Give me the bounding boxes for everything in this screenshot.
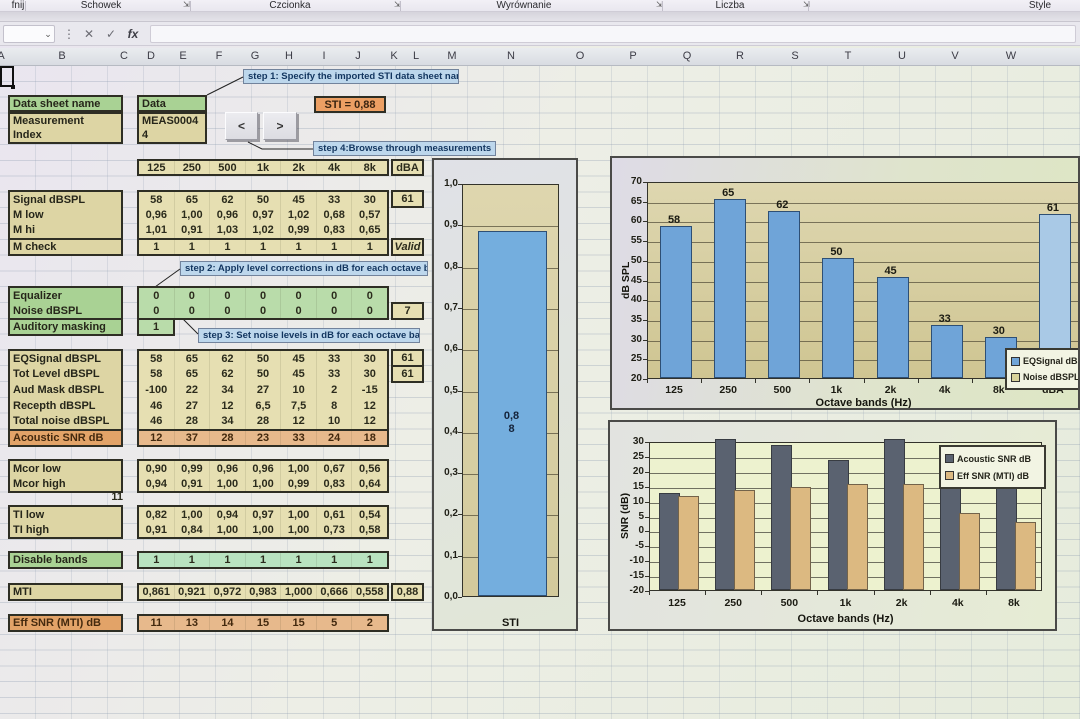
row-value-group[interactable]: 1	[137, 318, 175, 336]
cell-mcorlow-5[interactable]: 0,67	[316, 461, 352, 476]
cell-recepth-5[interactable]: 8	[316, 398, 352, 414]
cell-totlevel-5[interactable]: 33	[316, 367, 352, 383]
cell-noise-4[interactable]: 0	[280, 303, 316, 318]
cell-mti-0[interactable]: 0,861	[139, 585, 174, 599]
cell-snr-4[interactable]: 33	[280, 431, 316, 445]
next-measurement-button[interactable]: >	[263, 112, 297, 140]
column-header-O[interactable]: O	[576, 50, 585, 62]
measurement-label-line: Index	[10, 128, 121, 142]
cell-mcorlow-4[interactable]: 1,00	[280, 461, 316, 476]
cell-mhi-1[interactable]: 0,91	[174, 223, 210, 238]
snr-bar-8k-s1	[1015, 522, 1036, 590]
spl-bar-label-500: 62	[776, 199, 788, 211]
cell-disable-3[interactable]: 1	[245, 553, 281, 567]
cell-recepth-2[interactable]: 12	[209, 398, 245, 414]
column-header-K[interactable]: K	[390, 50, 397, 62]
row-label-group[interactable]: Signal dBSPLM lowM hi	[8, 190, 123, 240]
row-label-group[interactable]: Auditory masking	[8, 318, 123, 336]
y-tick-mark	[458, 349, 462, 350]
cell-tihigh-4[interactable]: 1,00	[280, 522, 316, 537]
row-value-group[interactable]: 586562504533300,961,000,960,971,020,680,…	[137, 190, 389, 240]
legend-swatch	[945, 471, 954, 480]
cell-audmask-0[interactable]: -100	[139, 382, 174, 398]
cell-disable-0[interactable]: 1	[139, 553, 174, 567]
cell-signal-6[interactable]: 30	[351, 192, 387, 207]
extra-cell-totlevel[interactable]: 61	[391, 365, 424, 383]
cell-audmask-1[interactable]: 22	[174, 382, 210, 398]
column-header-N[interactable]: N	[507, 50, 515, 62]
cell-mcheck-5[interactable]: 1	[316, 240, 352, 254]
cell-masking-0[interactable]: 1	[139, 320, 173, 334]
band-header-500[interactable]: 500	[209, 161, 245, 174]
cell-tihigh-3[interactable]: 1,00	[245, 522, 281, 537]
row-values-disable: 1111111	[139, 553, 387, 567]
cancel-icon[interactable]: ✕	[80, 25, 98, 43]
cell-noise-5[interactable]: 0	[316, 303, 352, 318]
column-header-D[interactable]: D	[147, 50, 155, 62]
cell-mcorhigh-1[interactable]: 0,91	[174, 476, 210, 491]
cell-snr-1[interactable]: 37	[174, 431, 210, 445]
row-value-group[interactable]: 0,821,000,940,971,000,610,540,910,841,00…	[137, 505, 389, 539]
cell-tilow-0[interactable]: 0,82	[139, 507, 174, 522]
row-label-disable[interactable]: Disable bands	[10, 553, 121, 567]
y-tick-label: 0,4	[434, 426, 458, 437]
cell-snr-0[interactable]: 12	[139, 431, 174, 445]
cell-noise-2[interactable]: 0	[209, 303, 245, 318]
snr-bar-125-s0	[659, 493, 680, 590]
column-header-P[interactable]: P	[629, 50, 636, 62]
cell-eqsignal-5[interactable]: 33	[316, 351, 352, 367]
cell-mhi-0[interactable]: 1,01	[139, 223, 174, 238]
cell-effsnr-3[interactable]: 15	[245, 616, 281, 630]
cell-totalnoise-6[interactable]: 12	[351, 413, 387, 429]
cell-disable-6[interactable]: 1	[351, 553, 387, 567]
band-header-1k[interactable]: 1k	[245, 161, 281, 174]
cell-mti-5[interactable]: 0,666	[316, 585, 352, 599]
cell-signal-4[interactable]: 45	[280, 192, 316, 207]
row-label-mhi[interactable]: M hi	[10, 223, 121, 238]
cell-tihigh-0[interactable]: 0,91	[139, 522, 174, 537]
row-label-mcheck[interactable]: M check	[10, 240, 121, 254]
cell-equalizer-5[interactable]: 0	[316, 288, 352, 303]
band-header-cells: 1252505001k2k4k8k	[139, 161, 387, 174]
cell-mlow-3[interactable]: 0,97	[245, 207, 281, 222]
cell-audmask-3[interactable]: 27	[245, 382, 281, 398]
cell-signal-1[interactable]: 65	[174, 192, 210, 207]
cell-mcorhigh-6[interactable]: 0,64	[351, 476, 387, 491]
row-label-mti[interactable]: MTI	[10, 585, 121, 599]
cell-mti-2[interactable]: 0,972	[209, 585, 245, 599]
cell-mcorhigh-0[interactable]: 0,94	[139, 476, 174, 491]
spl-chart[interactable]: 7065605550454035302520581256525062500501…	[610, 156, 1080, 410]
cell-mti-6[interactable]: 0,558	[351, 585, 387, 599]
cell-recepth-3[interactable]: 6,5	[245, 398, 281, 414]
column-header-B[interactable]: B	[58, 50, 65, 62]
data-sheet-name-label-cell[interactable]: Data sheet name	[8, 95, 123, 112]
ribbon-group-schowek: Schowek	[81, 0, 122, 12]
cell-snr-2[interactable]: 28	[209, 431, 245, 445]
ribbon-separator	[25, 1, 26, 11]
cell-mti-1[interactable]: 0,921	[174, 585, 210, 599]
cell-eqsignal-0[interactable]: 58	[139, 351, 174, 367]
cell-signal-5[interactable]: 33	[316, 192, 352, 207]
cell-audmask-5[interactable]: 2	[316, 382, 352, 398]
cell-mhi-4[interactable]: 0,99	[280, 223, 316, 238]
sti-plot-area: 0,88	[462, 184, 559, 597]
cell-mhi-5[interactable]: 0,83	[316, 223, 352, 238]
snr-chart[interactable]: 302520151050-5-10-15-201252505001k2k4k8k…	[608, 420, 1057, 631]
cell-mti-4[interactable]: 1,000	[280, 585, 316, 599]
cell-tilow-1[interactable]: 1,00	[174, 507, 210, 522]
spl-bar-1k	[822, 258, 854, 378]
cell-mcheck-3[interactable]: 1	[245, 240, 281, 254]
measurement-value-cell[interactable]: MEAS00044	[137, 112, 207, 144]
cell-mcorlow-3[interactable]: 0,96	[245, 461, 281, 476]
legend-label: Noise dBSPL	[1023, 372, 1080, 382]
row-label-equalizer[interactable]: Equalizer	[10, 288, 121, 303]
cell-tilow-6[interactable]: 0,54	[351, 507, 387, 522]
spl-x-category-125: 125	[665, 384, 683, 396]
cell-effsnr-6[interactable]: 2	[351, 616, 387, 630]
row-values-totalnoise: 46283428121012	[139, 413, 387, 429]
cell-totalnoise-3[interactable]: 28	[245, 413, 281, 429]
ribbon-separator	[400, 1, 401, 11]
cell-recepth-6[interactable]: 12	[351, 398, 387, 414]
row-label-group[interactable]: TI lowTI high	[8, 505, 123, 539]
row-values-masking: 1	[139, 320, 173, 334]
row-label-effsnr[interactable]: Eff SNR (MTI) dB	[10, 616, 121, 630]
snr-x-category-125: 125	[668, 597, 686, 609]
cell-effsnr-1[interactable]: 13	[174, 616, 210, 630]
snr-bar-2k-s0	[884, 439, 905, 590]
cell-effsnr-4[interactable]: 15	[280, 616, 316, 630]
extra-cell-signal[interactable]: 61	[391, 190, 424, 208]
cell-signal-2[interactable]: 62	[209, 192, 245, 207]
cell-mcorlow-6[interactable]: 0,56	[351, 461, 387, 476]
column-header-U[interactable]: U	[898, 50, 906, 62]
fx-icon[interactable]: fx	[124, 25, 142, 43]
row-label-group[interactable]: EQSignal dBSPLTot Level dBSPLAud Mask dB…	[8, 349, 123, 431]
row-label-recepth[interactable]: Recepth dBSPL	[10, 398, 121, 414]
row-value-group[interactable]: 5865625045333058656250453330-10022342710…	[137, 349, 389, 431]
stray-cell-value[interactable]: 11	[80, 491, 123, 506]
cell-mhi-6[interactable]: 0,65	[351, 223, 387, 238]
y-tick-mark	[643, 359, 647, 360]
column-header-I[interactable]: I	[322, 50, 325, 62]
cell-disable-5[interactable]: 1	[316, 553, 352, 567]
column-header-Q[interactable]: Q	[683, 50, 692, 62]
cell-audmask-4[interactable]: 10	[280, 382, 316, 398]
cell-tilow-3[interactable]: 0,97	[245, 507, 281, 522]
row-label-group[interactable]: EqualizerNoise dBSPL	[8, 286, 123, 320]
cell-totlevel-1[interactable]: 65	[174, 367, 210, 383]
cell-mcheck-4[interactable]: 1	[280, 240, 316, 254]
row-label-group[interactable]: Mcor lowMcor high	[8, 459, 123, 493]
cell-recepth-4[interactable]: 7,5	[280, 398, 316, 414]
column-header-F[interactable]: F	[216, 50, 223, 62]
x-tick-mark	[972, 379, 973, 383]
row-label-snr[interactable]: Acoustic SNR dB	[10, 431, 121, 445]
band-header-row[interactable]: 1252505001k2k4k8k	[137, 159, 389, 176]
snr-bar-500-s1	[790, 487, 811, 590]
column-header-R[interactable]: R	[736, 50, 744, 62]
extra-cell-mcheck[interactable]: Valid	[391, 238, 424, 256]
cell-mlow-5[interactable]: 0,68	[316, 207, 352, 222]
row-label-tihigh[interactable]: TI high	[10, 522, 121, 537]
check-icon[interactable]: ✓	[102, 25, 120, 43]
cell-mlow-4[interactable]: 1,02	[280, 207, 316, 222]
cell-equalizer-0[interactable]: 0	[139, 288, 174, 303]
cell-snr-6[interactable]: 18	[351, 431, 387, 445]
sti-bar-value-label: 0,88	[478, 410, 545, 436]
band-header-125[interactable]: 125	[139, 161, 174, 174]
row-value-group[interactable]: 1111111	[137, 551, 389, 569]
cell-mcheck-0[interactable]: 1	[139, 240, 174, 254]
spl-bar-500	[768, 211, 800, 378]
band-header-8k[interactable]: 8k	[351, 161, 387, 174]
row-label-totalnoise[interactable]: Total noise dBSPL	[10, 413, 121, 429]
previous-measurement-button[interactable]: <	[225, 112, 258, 140]
worksheet[interactable]: Data sheet nameMeasurementIndexDataMEAS0…	[0, 66, 1080, 719]
row-values-recepth: 4627126,57,5812	[139, 398, 387, 414]
cell-eqsignal-1[interactable]: 65	[174, 351, 210, 367]
cell-mcorhigh-3[interactable]: 1,00	[245, 476, 281, 491]
cell-totalnoise-1[interactable]: 28	[174, 413, 210, 429]
snr-bar-2k-s1	[903, 484, 924, 590]
cell-totlevel-0[interactable]: 58	[139, 367, 174, 383]
cell-noise-1[interactable]: 0	[174, 303, 210, 318]
row-label-group[interactable]: MTI	[8, 583, 123, 601]
cell-totlevel-4[interactable]: 45	[280, 367, 316, 383]
cell-tilow-4[interactable]: 1,00	[280, 507, 316, 522]
spl-x-category-8k: 8k	[993, 384, 1005, 396]
y-tick-mark	[643, 320, 647, 321]
column-header-A[interactable]: A	[0, 50, 5, 62]
x-tick-mark	[701, 379, 702, 383]
row-label-mcorlow[interactable]: Mcor low	[10, 461, 121, 476]
ribbon-group-liczba: Liczba	[716, 0, 745, 12]
cell-mhi-3[interactable]: 1,02	[245, 223, 281, 238]
legend-entry: Acoustic SNR dB	[945, 454, 1040, 464]
row-values-noise: 0000000	[139, 303, 387, 318]
cell-equalizer-4[interactable]: 0	[280, 288, 316, 303]
cell-disable-2[interactable]: 1	[209, 553, 245, 567]
band-header-2k[interactable]: 2k	[280, 161, 316, 174]
y-tick-label: 0,5	[434, 385, 458, 396]
y-tick-label: 65	[620, 196, 642, 207]
y-tick-mark	[643, 221, 647, 222]
cell-mcorlow-0[interactable]: 0,90	[139, 461, 174, 476]
cell-totlevel-2[interactable]: 62	[209, 367, 245, 383]
snr-x-category-2k: 2k	[896, 597, 908, 609]
snr-y-axis-title: SNR (dB)	[619, 492, 631, 538]
cell-audmask-2[interactable]: 34	[209, 382, 245, 398]
spl-x-category-2k: 2k	[885, 384, 897, 396]
y-tick-label: 15	[618, 481, 644, 492]
cell-equalizer-6[interactable]: 0	[351, 288, 387, 303]
cell-effsnr-5[interactable]: 5	[316, 616, 352, 630]
cell-mcorhigh-4[interactable]: 0,99	[280, 476, 316, 491]
y-tick-mark	[458, 267, 462, 268]
cell-effsnr-0[interactable]: 11	[139, 616, 174, 630]
y-tick-label: 35	[620, 314, 642, 325]
cell-tihigh-6[interactable]: 0,58	[351, 522, 387, 537]
row-label-group[interactable]: Disable bands	[8, 551, 123, 569]
cell-recepth-1[interactable]: 27	[174, 398, 210, 414]
row-label-group[interactable]: Eff SNR (MTI) dB	[8, 614, 123, 632]
data-sheet-name-label: Data sheet name	[10, 97, 121, 110]
row-value-group[interactable]: 00000000000000	[137, 286, 389, 320]
cell-mcheck-6[interactable]: 1	[351, 240, 387, 254]
column-header-S[interactable]: S	[791, 50, 798, 62]
column-header-L[interactable]: L	[413, 50, 419, 62]
cell-tihigh-5[interactable]: 0,73	[316, 522, 352, 537]
spl-bar-label-1k: 50	[830, 246, 842, 258]
fill-handle[interactable]	[11, 85, 15, 89]
cell-disable-4[interactable]: 1	[280, 553, 316, 567]
cell-mlow-2[interactable]: 0,96	[209, 207, 245, 222]
y-tick-label: -20	[618, 585, 644, 596]
column-header-W[interactable]: W	[1006, 50, 1016, 62]
spl-bar-2k	[877, 277, 909, 378]
cell-eqsignal-2[interactable]: 62	[209, 351, 245, 367]
band-header-4k[interactable]: 4k	[316, 161, 352, 174]
cell-mhi-2[interactable]: 1,03	[209, 223, 245, 238]
gridline	[648, 301, 1079, 302]
cell-eqsignal-4[interactable]: 45	[280, 351, 316, 367]
ribbon-group-czcionka: Czcionka	[269, 0, 310, 12]
cell-noise-0[interactable]: 0	[139, 303, 174, 318]
dialog-launcher-icon[interactable]: ⇲	[656, 0, 665, 10]
cell-mlow-0[interactable]: 0,96	[139, 207, 174, 222]
column-header-H[interactable]: H	[285, 50, 293, 62]
y-tick-label: 0,8	[434, 261, 458, 272]
cell-totalnoise-2[interactable]: 34	[209, 413, 245, 429]
row-label-mlow[interactable]: M low	[10, 207, 121, 222]
row-label-group[interactable]: Acoustic SNR dB	[8, 429, 123, 447]
row-value-group[interactable]: 111314151552	[137, 614, 389, 632]
cell-totalnoise-5[interactable]: 10	[316, 413, 352, 429]
cell-recepth-0[interactable]: 46	[139, 398, 174, 414]
y-tick-mark	[645, 442, 649, 443]
column-header-T[interactable]: T	[845, 50, 852, 62]
gridline	[648, 262, 1079, 263]
cell-mcorlow-2[interactable]: 0,96	[209, 461, 245, 476]
sti-x-axis-title: STI	[502, 617, 519, 629]
cell-snr-5[interactable]: 24	[316, 431, 352, 445]
y-tick-label: 30	[620, 334, 642, 345]
y-tick-label: -5	[618, 540, 644, 551]
sti-chart[interactable]: 0,881,00,90,80,70,60,50,40,30,20,10,0STI	[432, 158, 578, 631]
band-header-250[interactable]: 250	[174, 161, 210, 174]
cell-equalizer-1[interactable]: 0	[174, 288, 210, 303]
column-header-C[interactable]: C	[120, 50, 128, 62]
chevron-down-icon[interactable]: ⌄	[42, 25, 54, 43]
cell-eqsignal-6[interactable]: 30	[351, 351, 387, 367]
cell-mlow-6[interactable]: 0,57	[351, 207, 387, 222]
column-header-G[interactable]: G	[251, 50, 260, 62]
cell-tilow-2[interactable]: 0,94	[209, 507, 245, 522]
y-tick-mark	[458, 597, 462, 598]
extra-cell-mti[interactable]: 0,88	[391, 583, 424, 601]
column-header-M[interactable]: M	[447, 50, 456, 62]
row-value-group[interactable]: 12372823332418	[137, 429, 389, 447]
cell-totlevel-3[interactable]: 50	[245, 367, 281, 383]
extra-cell-noise[interactable]: 7	[391, 302, 424, 320]
cell-eqsignal-3[interactable]: 50	[245, 351, 281, 367]
cell-totlevel-6[interactable]: 30	[351, 367, 387, 383]
cell-noise-3[interactable]: 0	[245, 303, 281, 318]
row-label-tilow[interactable]: TI low	[10, 507, 121, 522]
x-tick-mark	[986, 591, 987, 595]
y-tick-label: 25	[618, 451, 644, 462]
cell-effsnr-2[interactable]: 14	[209, 616, 245, 630]
x-tick-mark	[705, 591, 706, 595]
measurement-index-label-cell[interactable]: MeasurementIndex	[8, 112, 123, 144]
cell-mti-3[interactable]: 0,983	[245, 585, 281, 599]
gridline	[648, 321, 1079, 322]
cell-snr-3[interactable]: 23	[245, 431, 281, 445]
cell-totalnoise-4[interactable]: 12	[280, 413, 316, 429]
cell-equalizer-3[interactable]: 0	[245, 288, 281, 303]
cell-mcheck-1[interactable]: 1	[174, 240, 210, 254]
row-label-masking[interactable]: Auditory masking	[10, 320, 121, 334]
measurement-value-line: 4	[139, 128, 205, 142]
cell-noise-6[interactable]: 0	[351, 303, 387, 318]
column-header-V[interactable]: V	[951, 50, 958, 62]
column-header-J[interactable]: J	[355, 50, 361, 62]
y-tick-label: 20	[620, 373, 642, 384]
cell-mcorlow-1[interactable]: 0,99	[174, 461, 210, 476]
cell-mcorhigh-5[interactable]: 0,83	[316, 476, 352, 491]
column-header-E[interactable]: E	[179, 50, 186, 62]
cell-signal-3[interactable]: 50	[245, 192, 281, 207]
dba-header-cell[interactable]: dBA	[391, 159, 424, 176]
row-label-group[interactable]: M check	[8, 238, 123, 256]
callout-step4: step 4:Browse through measurements	[313, 141, 496, 156]
row-values-mhi: 1,010,911,031,020,990,830,65	[139, 223, 387, 238]
snr-x-category-500: 500	[781, 597, 799, 609]
cell-equalizer-2[interactable]: 0	[209, 288, 245, 303]
gridline	[463, 226, 558, 227]
cell-totalnoise-0[interactable]: 46	[139, 413, 174, 429]
formula-input[interactable]	[150, 25, 1076, 43]
legend-label: EQSignal dBSPL	[1023, 356, 1080, 366]
row-value-group[interactable]: 0,900,990,960,961,000,670,560,940,911,00…	[137, 459, 389, 493]
cell-audmask-6[interactable]: -15	[351, 382, 387, 398]
row-label-mcorhigh[interactable]: Mcor high	[10, 476, 121, 491]
row-label-noise[interactable]: Noise dBSPL	[10, 303, 121, 318]
cell-tilow-5[interactable]: 0,61	[316, 507, 352, 522]
dialog-launcher-icon[interactable]: ⇲	[394, 0, 403, 10]
cell-mlow-1[interactable]: 1,00	[174, 207, 210, 222]
cell-mcheck-2[interactable]: 1	[209, 240, 245, 254]
row-label-eqsignal[interactable]: EQSignal dBSPL	[10, 351, 121, 367]
y-tick-mark	[458, 432, 462, 433]
data-sheet-name-value-cell[interactable]: Data	[137, 95, 207, 112]
row-label-signal[interactable]: Signal dBSPL	[10, 192, 121, 207]
row-value-group[interactable]: 1111111	[137, 238, 389, 256]
row-label-audmask[interactable]: Aud Mask dBSPL	[10, 382, 121, 398]
y-tick-mark	[458, 308, 462, 309]
cell-mcorhigh-2[interactable]: 1,00	[209, 476, 245, 491]
cell-tihigh-1[interactable]: 0,84	[174, 522, 210, 537]
row-label-totlevel[interactable]: Tot Level dBSPL	[10, 367, 121, 383]
cell-tihigh-2[interactable]: 1,00	[209, 522, 245, 537]
row-value-group[interactable]: 0,8610,9210,9720,9831,0000,6660,558	[137, 583, 389, 601]
cell-disable-1[interactable]: 1	[174, 553, 210, 567]
cell-signal-0[interactable]: 58	[139, 192, 174, 207]
